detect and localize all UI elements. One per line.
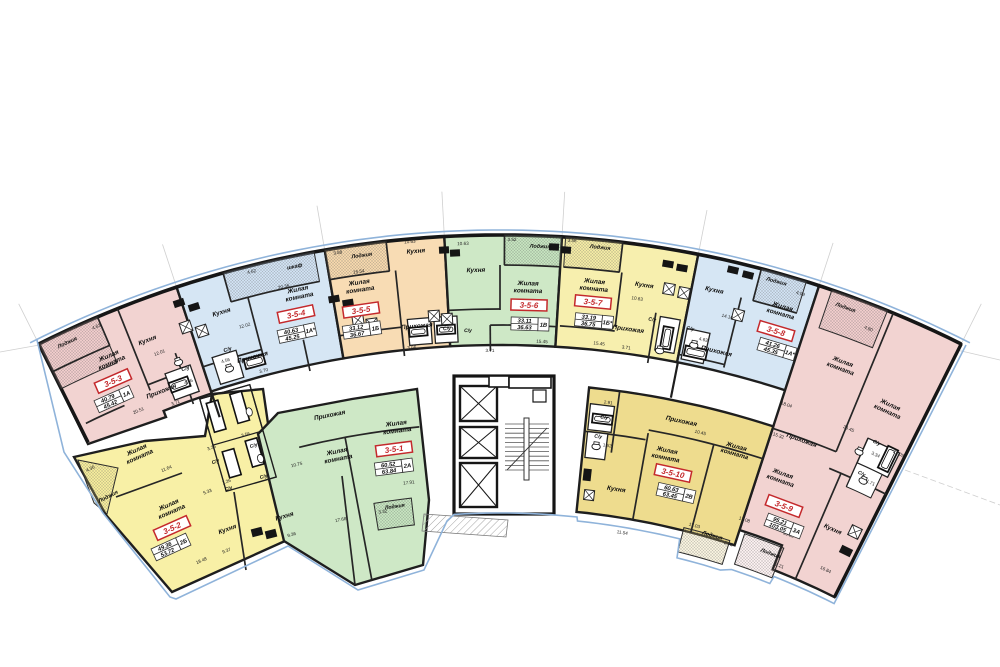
svg-text:3.71: 3.71 <box>485 348 494 353</box>
svg-text:Кухня: Кухня <box>467 267 486 274</box>
svg-text:3-5-7: 3-5-7 <box>583 297 603 308</box>
svg-text:1В: 1В <box>540 323 548 329</box>
svg-text:Лоджия: Лоджия <box>529 244 552 251</box>
svg-text:С/у: С/у <box>443 326 451 332</box>
svg-text:10.63: 10.63 <box>457 241 469 246</box>
svg-text:Жилая: Жилая <box>516 280 539 288</box>
svg-text:36.63: 36.63 <box>517 325 532 331</box>
svg-text:1Б*: 1Б* <box>602 320 613 327</box>
svg-text:3.52: 3.52 <box>508 237 517 242</box>
svg-text:С/у: С/у <box>594 434 603 441</box>
svg-text:3.66: 3.66 <box>407 345 417 351</box>
svg-text:15.45: 15.45 <box>536 339 548 345</box>
svg-text:3-5-6: 3-5-6 <box>520 301 539 311</box>
svg-text:2А: 2А <box>402 463 411 470</box>
svg-text:С/у: С/у <box>648 316 657 323</box>
svg-text:10.63: 10.63 <box>404 238 416 244</box>
svg-text:С/у: С/у <box>464 328 472 334</box>
svg-text:1Б: 1Б <box>371 326 379 333</box>
svg-text:С/у: С/у <box>600 415 609 422</box>
svg-text:33.11: 33.11 <box>517 318 531 324</box>
svg-text:комната: комната <box>514 287 543 295</box>
svg-text:3.56: 3.56 <box>567 238 577 244</box>
